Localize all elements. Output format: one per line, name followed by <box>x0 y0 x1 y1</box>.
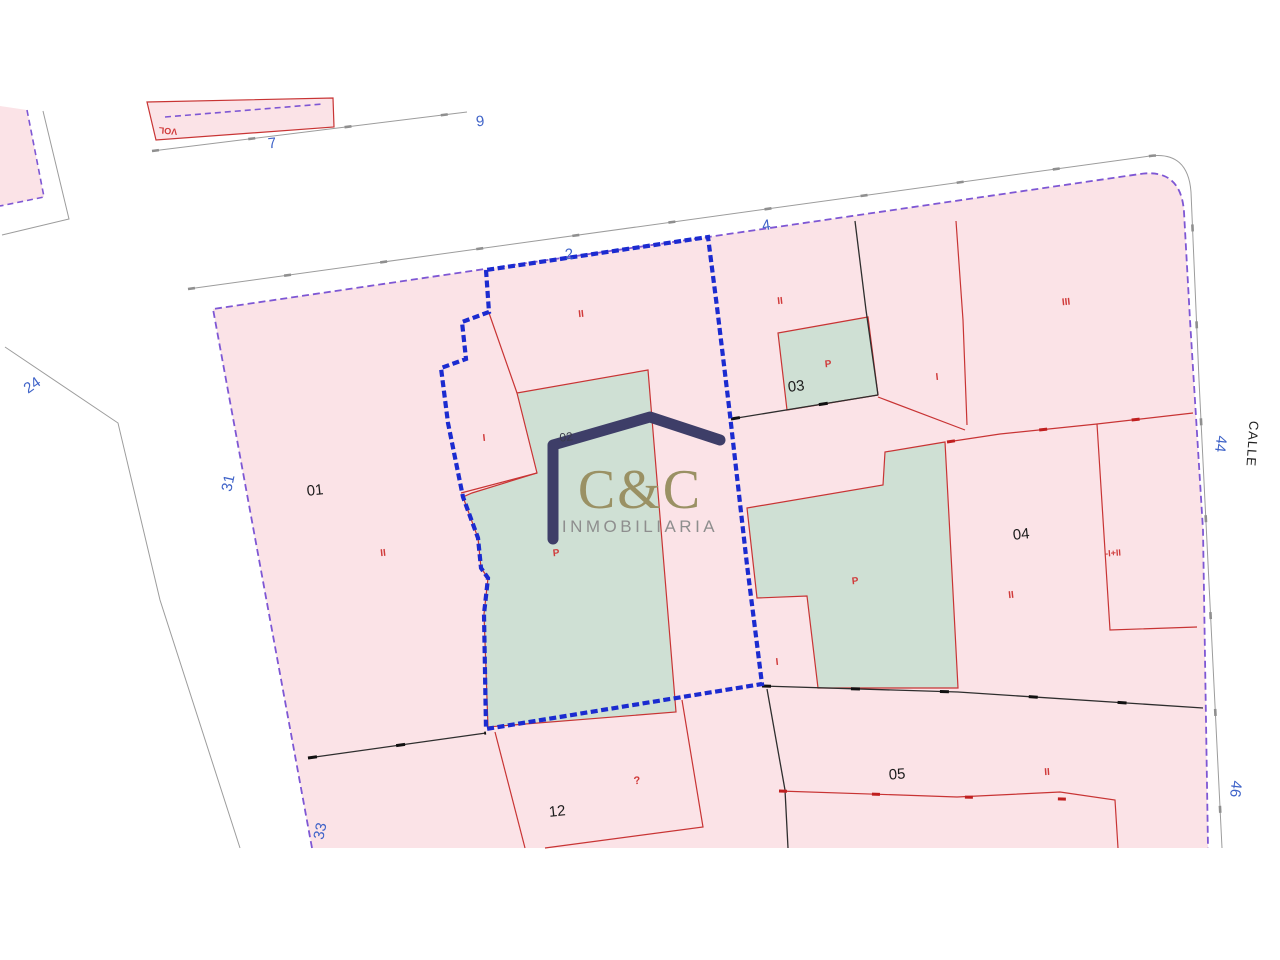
city-block-area[interactable] <box>213 173 1208 848</box>
parcel-label-12: 12 <box>548 802 566 821</box>
cadastral-map-viewport: C&C INMOBILIARIA 01 02 03 04 05 12 9 7 2… <box>0 0 1280 960</box>
street-name-label: CALLE <box>1243 420 1261 467</box>
neighbor-parcel-far-left[interactable] <box>0 106 44 206</box>
street-number-9: 9 <box>475 113 485 131</box>
logo-subtitle: INMOBILIARIA <box>562 517 718 536</box>
logo-name: C&C <box>578 459 702 521</box>
street-line-left-outer <box>5 347 240 848</box>
street-number-24: 24 <box>21 374 44 397</box>
construction-label-vol: VOL <box>158 125 178 137</box>
construction-label-III: III <box>1061 297 1071 309</box>
street-number-7: 7 <box>267 135 277 153</box>
parcel-label-04: 04 <box>1012 525 1030 544</box>
street-number-33: 33 <box>310 821 330 841</box>
parcel-label-01: 01 <box>306 481 324 500</box>
street-number-2: 2 <box>564 245 575 263</box>
parcel-label-03: 03 <box>787 377 805 396</box>
parcel-label-05: 05 <box>888 765 906 783</box>
parcel-label-02: 02 <box>559 429 574 445</box>
street-number-31: 31 <box>218 473 238 493</box>
street-number-44: 44 <box>1211 435 1230 454</box>
street-number-4: 4 <box>761 216 772 234</box>
street-number-46: 46 <box>1226 780 1245 799</box>
construction-label-minusI-plusII: -I+II <box>1105 547 1121 558</box>
construction-label-II: II <box>1044 767 1051 778</box>
cadastral-map: C&C INMOBILIARIA 01 02 03 04 05 12 9 7 2… <box>0 0 1280 960</box>
